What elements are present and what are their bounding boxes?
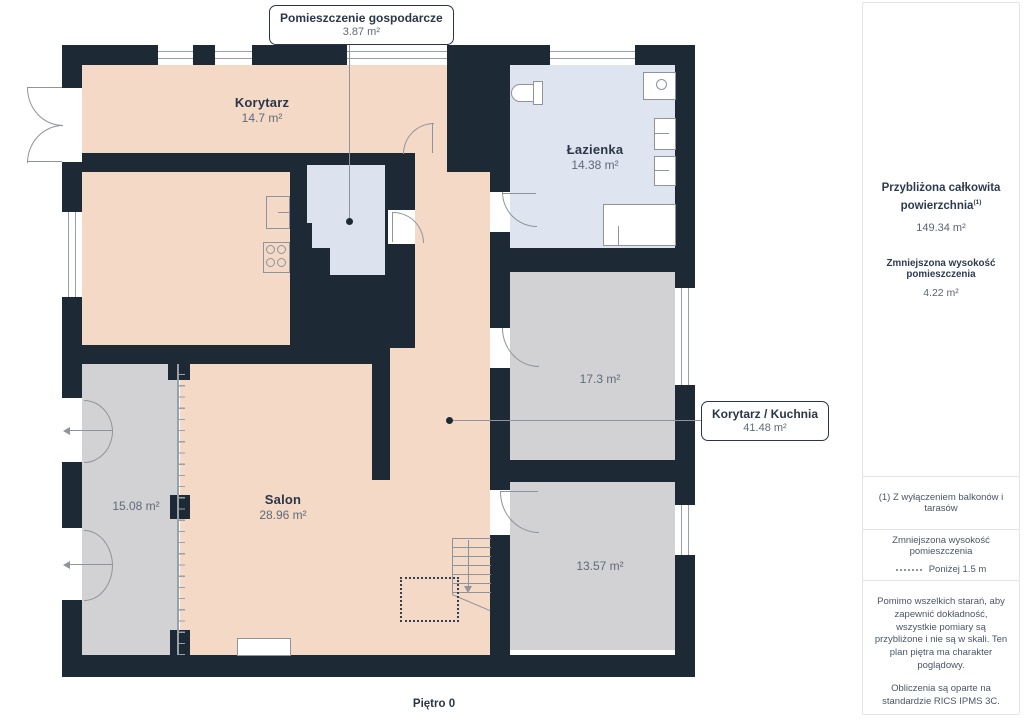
window — [215, 45, 252, 65]
wall-segment — [490, 272, 510, 328]
room-area: 13.57 m² — [576, 559, 623, 573]
door-opening — [415, 153, 447, 172]
bathtub-icon — [618, 226, 619, 246]
wall-segment — [675, 385, 695, 505]
radiator-icon — [655, 133, 669, 134]
window — [62, 212, 82, 297]
callout-utility-room: Pomieszczenie gospodarcze 3.87 m² — [269, 5, 454, 45]
wall-segment — [510, 248, 695, 272]
callout-title: Pomieszczenie gospodarcze — [280, 11, 443, 25]
wall-segment — [252, 45, 347, 65]
callout-title: Korytarz / Kuchnia — [712, 407, 818, 421]
door-opening — [62, 88, 82, 162]
wall-segment — [510, 460, 695, 482]
wall-segment — [490, 62, 510, 192]
callout-area: 3.87 m² — [280, 26, 443, 38]
reduced-height-title: Zmniejszona wysokość pomieszczenia — [866, 258, 1016, 280]
sidebar-disclaimer-panel: Pomimo wszelkich starań, aby zapewnić do… — [862, 580, 1020, 715]
wall-segment — [62, 462, 82, 528]
room-name: Salon — [259, 492, 306, 507]
floor-label: Piętro 0 — [413, 698, 455, 710]
leader-dot — [346, 218, 353, 225]
wall-segment — [62, 655, 695, 677]
reduced-height-area — [400, 577, 459, 622]
total-area-value: 149.34 m² — [916, 222, 966, 234]
room-fill-utility — [330, 248, 385, 275]
radiator-icon — [655, 170, 669, 171]
sidebar-footnote-panel: (1) Z wyłączeniem balkonów i tarasów — [862, 476, 1020, 530]
exit-arrow-head-icon — [63, 427, 70, 435]
toilet-icon — [511, 84, 535, 102]
room-area: 15.08 m² — [112, 499, 159, 513]
footnote-text: (1) Z wyłączeniem balkonów i tarasów — [863, 492, 1019, 514]
kitchen-sink-icon — [278, 212, 290, 213]
door-leaf — [27, 87, 62, 88]
room-area: 14.38 m² — [567, 158, 624, 172]
total-area-title: Przybliżona całkowita powierzchnia(1) — [874, 180, 1008, 215]
door-leaf — [502, 193, 536, 194]
window — [550, 45, 635, 65]
wall-segment — [193, 45, 215, 65]
total-area-title-text: Przybliżona całkowita powierzchnia — [882, 182, 1001, 211]
info-sidebar: Przybliżona całkowita powierzchnia(1) 14… — [862, 2, 1020, 715]
stairs-arrow — [468, 540, 469, 586]
legend-title: Zmniejszona wysokość pomieszczenia — [863, 535, 1019, 557]
stove-burner-icon — [277, 258, 286, 267]
footnote-marker: (1) — [973, 199, 981, 206]
exit-arrow-head-icon — [63, 561, 70, 569]
callout-area: 41.48 m² — [712, 422, 818, 434]
wall-segment — [62, 345, 372, 364]
wall-segment — [62, 45, 82, 88]
standard-note: Obliczenia są oparte na standardzie RICS… — [874, 683, 1008, 709]
door-leaf — [432, 123, 433, 153]
room-fill-corridor — [415, 172, 490, 355]
callout-corridor-kitchen: Korytarz / Kuchnia 41.48 m² — [701, 401, 829, 441]
door-arc — [27, 125, 63, 163]
sidebar-legend-panel: Zmniejszona wysokość pomieszczenia Poniż… — [862, 529, 1020, 581]
wall-segment — [490, 535, 510, 655]
room-label-salon: Salon 28.96 m² — [259, 492, 306, 522]
stove-burner-icon — [266, 245, 275, 254]
room-area: 14.7 m² — [235, 111, 289, 125]
room-fill-utility — [307, 165, 385, 223]
legend-item-text: Poniżej 1.5 m — [929, 564, 987, 575]
window — [347, 45, 447, 65]
wall-segment — [490, 232, 510, 272]
floor-plan-page: Korytarz 14.7 m² Łazienka 14.38 m² 17.3 … — [0, 0, 1024, 724]
disclaimer-text: Pomimo wszelkich starań, aby zapewnić do… — [874, 596, 1008, 673]
wall-segment — [490, 368, 510, 490]
wall-segment — [62, 162, 82, 212]
bathtub-icon — [603, 204, 676, 246]
room-name: Korytarz — [235, 95, 289, 110]
leader-line — [349, 42, 350, 222]
room-fill-kitchen — [82, 172, 290, 345]
leader-line — [450, 420, 703, 421]
room-area: 17.3 m² — [580, 372, 621, 386]
room-name: Łazienka — [567, 142, 624, 157]
wall-niche — [237, 638, 291, 656]
stove-burner-icon — [266, 258, 275, 267]
window — [675, 505, 695, 555]
room-label-korytarz: Korytarz 14.7 m² — [235, 95, 289, 125]
window — [158, 45, 193, 65]
room-label-17: 17.3 m² — [580, 371, 621, 386]
stove-burner-icon — [277, 245, 286, 254]
toilet-icon — [533, 81, 543, 105]
door-arc — [27, 88, 63, 126]
exit-arrow — [70, 564, 112, 565]
glass-partition — [177, 364, 185, 655]
door-leaf — [500, 491, 538, 492]
wall-segment — [447, 65, 490, 172]
window — [675, 288, 695, 385]
room-area: 28.96 m² — [259, 508, 306, 522]
stairs-arrow-head-icon — [464, 586, 472, 593]
wall-segment — [372, 345, 390, 480]
room-label-15: 15.08 m² — [112, 498, 159, 513]
room-label-lazienka: Łazienka 14.38 m² — [567, 142, 624, 172]
sidebar-summary-panel: Przybliżona całkowita powierzchnia(1) 14… — [862, 2, 1020, 477]
dashed-line-icon — [896, 569, 922, 571]
room-label-13: 13.57 m² — [576, 558, 623, 573]
room-fill-utility — [312, 223, 385, 248]
leader-dot — [446, 417, 453, 424]
door-leaf — [27, 161, 62, 162]
exit-arrow — [70, 430, 112, 431]
reduced-height-value: 4.22 m² — [923, 287, 959, 299]
bathroom-sink-icon — [656, 79, 667, 90]
door-leaf — [392, 212, 393, 242]
